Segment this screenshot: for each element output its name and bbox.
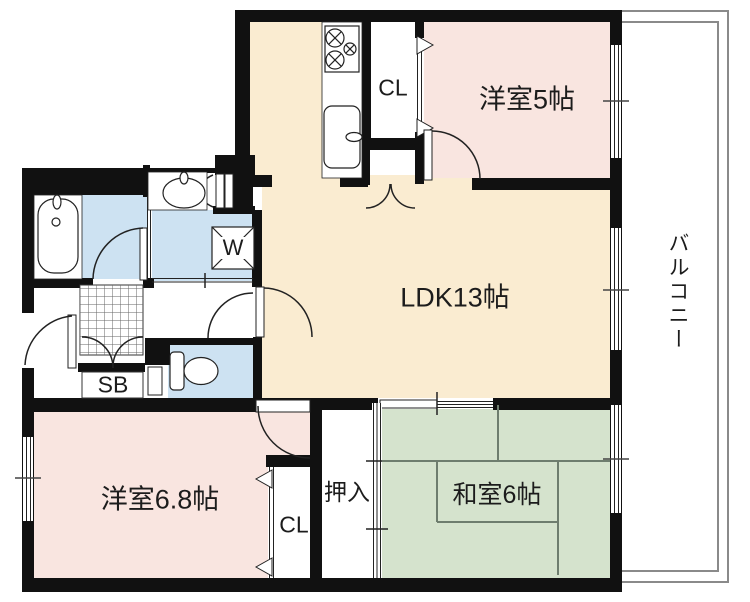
label-closet-upper: CL (378, 75, 407, 102)
label-washing-machine: W (220, 237, 247, 259)
label-oshiire: 押入 (324, 473, 370, 507)
floorplan-image: 洋室5帖 CL LDK13帖 バルコニー 洋室6.8帖 CL 押入 和室6帖 S… (0, 0, 750, 602)
label-western-room-5: 洋室5帖 (479, 78, 575, 117)
entrance-tile (80, 285, 143, 355)
kitchen-sink-icon (324, 106, 362, 168)
label-western-room-68: 洋室6.8帖 (101, 478, 220, 517)
label-ldk: LDK13帖 (400, 276, 510, 315)
label-balcony: バルコニー (662, 232, 692, 352)
label-japanese-room: 和室6帖 (453, 475, 542, 511)
label-shoe-box: SB (98, 372, 129, 399)
gas-stove-icon (325, 26, 359, 72)
washbasin-icon (148, 172, 207, 210)
label-closet-lower: CL (279, 512, 308, 539)
bathtub-icon (34, 195, 82, 279)
